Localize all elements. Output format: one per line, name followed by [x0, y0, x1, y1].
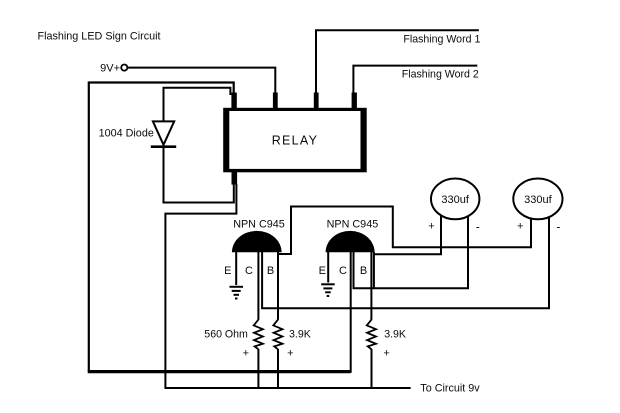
svg-text:Flashing LED Sign Circuit: Flashing LED Sign Circuit: [38, 31, 161, 43]
svg-text:3.9K: 3.9K: [384, 329, 406, 341]
svg-text:330uf: 330uf: [441, 194, 469, 206]
svg-text:+: +: [383, 348, 389, 360]
svg-text:330uf: 330uf: [524, 194, 552, 206]
svg-text:Flashing Word 1: Flashing Word 1: [403, 34, 480, 46]
svg-text:To Circuit 9v: To Circuit 9v: [420, 383, 480, 395]
svg-text:RELAY: RELAY: [272, 133, 319, 147]
svg-text:C: C: [245, 265, 253, 277]
svg-text:+: +: [517, 221, 523, 233]
svg-text:NPN C945: NPN C945: [233, 219, 285, 231]
svg-text:+: +: [243, 348, 249, 360]
svg-text:Flashing Word 2: Flashing Word 2: [402, 69, 479, 81]
svg-text:B: B: [360, 265, 367, 277]
svg-text:1004 Diode: 1004 Diode: [99, 127, 154, 139]
svg-text:3.9K: 3.9K: [289, 329, 311, 341]
svg-text:-: -: [476, 220, 480, 234]
svg-text:+: +: [287, 348, 293, 360]
svg-text:C: C: [339, 265, 347, 277]
svg-text:+: +: [428, 221, 434, 233]
svg-text:9V+: 9V+: [100, 62, 120, 74]
svg-text:-: -: [556, 220, 560, 234]
svg-text:B: B: [267, 265, 274, 277]
svg-text:560 Ohm: 560 Ohm: [204, 329, 248, 341]
svg-text:NPN C945: NPN C945: [327, 219, 379, 231]
svg-text:E: E: [319, 265, 326, 277]
svg-text:E: E: [224, 265, 231, 277]
